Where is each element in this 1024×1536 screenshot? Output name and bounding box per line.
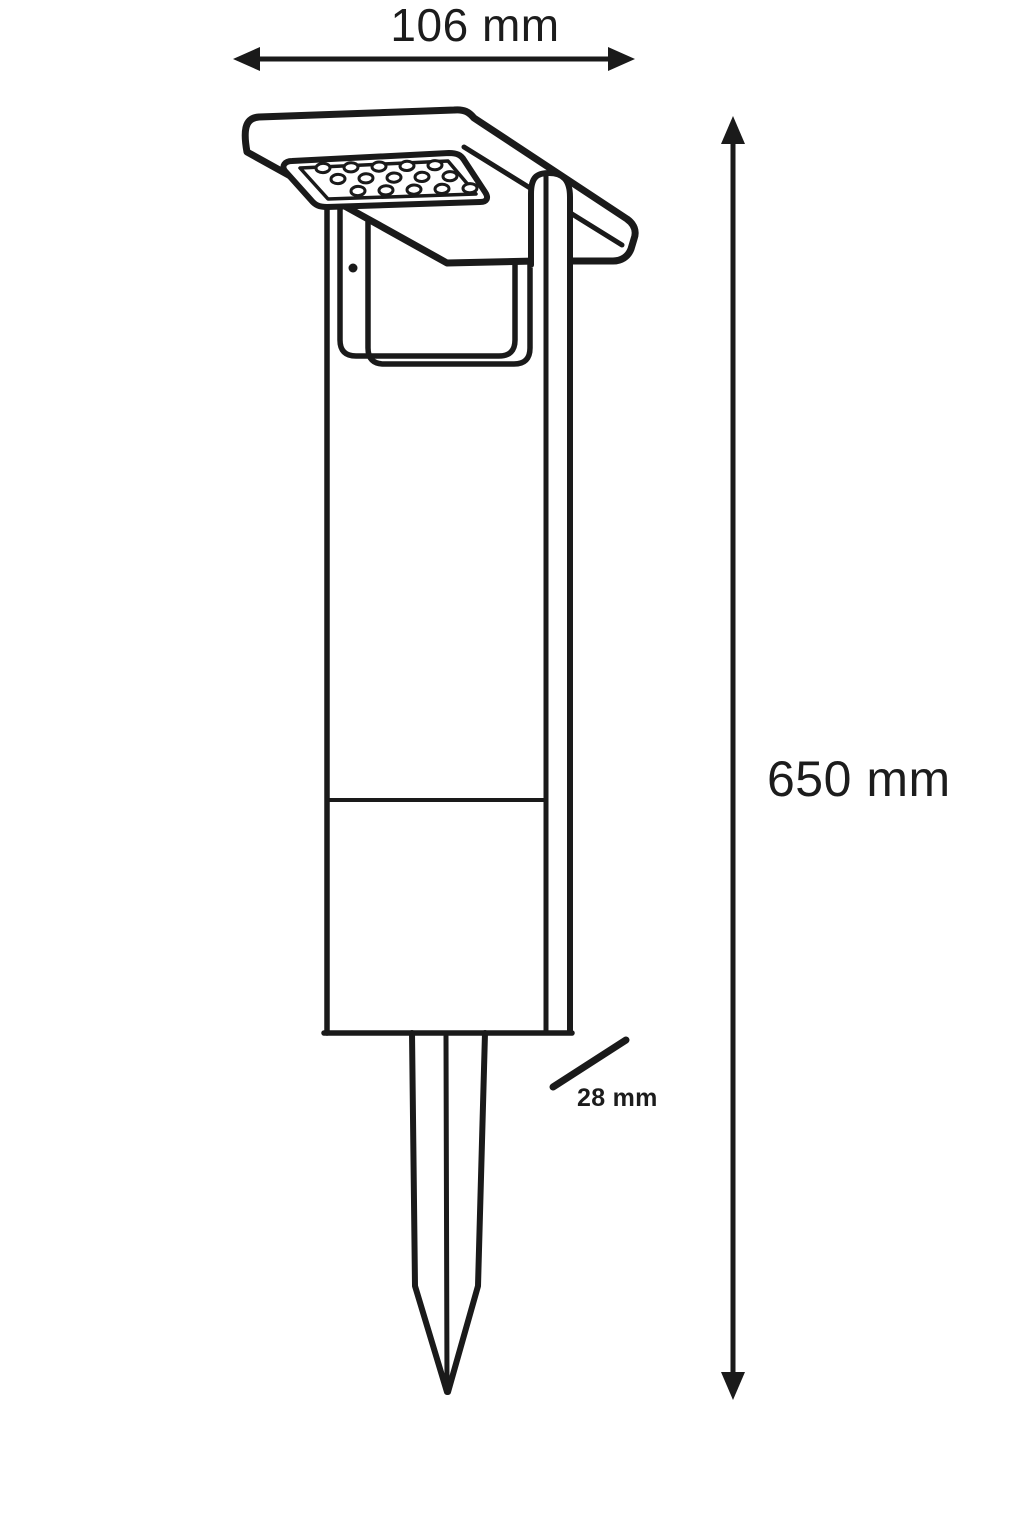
spike-dimension-label: 28 mm [577, 1086, 658, 1111]
led-dot-icon [387, 173, 401, 183]
led-dot-icon [407, 185, 421, 195]
lamp-body [324, 200, 572, 1033]
height-dimension-arrow [721, 116, 745, 1400]
led-dot-icon [316, 163, 330, 173]
led-dot-icon [379, 185, 393, 195]
spike-left-edge [412, 1033, 447, 1392]
led-dot-icon [372, 162, 386, 172]
height-arrow-top-head-icon [721, 116, 745, 144]
dimension-diagram: 106 mm 650 mm 28 mm [0, 0, 1024, 1536]
height-arrow-bottom-head-icon [721, 1372, 745, 1400]
led-dot-icon [443, 171, 457, 181]
led-dot-icon [428, 160, 442, 170]
height-dimension-label: 650 mm [767, 754, 951, 804]
led-dot-icon [463, 183, 477, 193]
width-arrow-right-head-icon [608, 47, 635, 71]
led-panel [283, 153, 487, 207]
indicator-dot-icon [349, 264, 358, 273]
led-dot-icon [400, 161, 414, 171]
led-dot-icon [351, 186, 365, 196]
led-dot-icon [331, 174, 345, 184]
spike-center-line [446, 1036, 447, 1390]
led-dot-icon [415, 172, 429, 182]
led-dot-icon [359, 173, 373, 183]
ground-spike [412, 1033, 485, 1392]
spike-pointer-line [553, 1040, 626, 1087]
stem-fill [531, 173, 570, 268]
led-dot-icon [435, 184, 449, 194]
width-dimension-label: 106 mm [390, 2, 559, 48]
led-dot-icon [344, 162, 358, 172]
spike-right-edge [448, 1033, 485, 1392]
width-arrow-left-head-icon [233, 47, 260, 71]
